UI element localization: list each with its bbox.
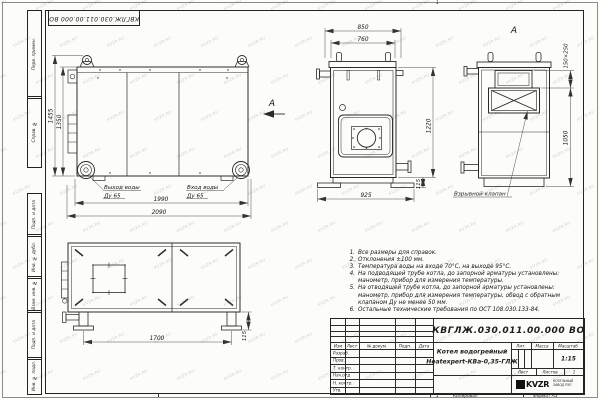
sheets-value: 1 (573, 369, 576, 374)
col-data: Дата (419, 343, 430, 348)
note-item: 4.На подводящей трубе котла, до запорной… (344, 271, 581, 285)
inlet-dn-label: Ду 65 (186, 194, 204, 200)
note-item: 5.На отводящей трубе котла, до запорной … (344, 285, 581, 306)
logo-mark (516, 380, 525, 389)
logo-text: KVZR (526, 380, 549, 389)
company-logo: KVZR (516, 380, 549, 389)
view-arrow-letter: А (268, 99, 275, 109)
note-item: 6.Остальные технические требования по ОС… (344, 307, 581, 314)
view-side (68, 56, 250, 181)
lit-label: Лит. (516, 343, 525, 348)
view-plan-dims (84, 312, 252, 345)
dim-front-height: 1220 (427, 118, 433, 133)
sheets-label: Листов (542, 369, 557, 374)
dim-valve-size: 150×250 (564, 43, 570, 69)
view-plan (62, 243, 242, 330)
row-utv: Утв. (333, 388, 342, 393)
row-razrab: Разраб. (333, 350, 349, 355)
view-section (461, 53, 551, 187)
view-front (317, 53, 415, 188)
title-block: Изм Лист № докум. Подп. Дата Разраб. Про… (330, 318, 585, 395)
col-izm: Изм (334, 343, 342, 348)
dim-length-outer: 2090 (152, 210, 167, 216)
dim-section-height: 1050 (564, 130, 570, 145)
col-list: Лист (347, 343, 357, 348)
col-podp: Подп. (399, 343, 411, 348)
inlet-label: Вход воды (187, 185, 219, 191)
view-direction-arrow (263, 110, 285, 118)
dim-width-inner: 760 (357, 37, 368, 43)
outlet-dn-label: Ду 65 (103, 194, 121, 200)
note-item: 1.Все размеры для справок. (344, 250, 581, 257)
section-view-letter: А (510, 26, 517, 36)
scale-value: 1:15 (561, 355, 576, 362)
explosion-valve-label: Взрывной клапан (454, 192, 506, 198)
dim-height-outer: 1455 (49, 108, 55, 123)
outlet-label: Выход воды (104, 185, 140, 191)
product-name-line1: Котел водогрейный (437, 349, 508, 356)
col-dokum: № докум. (367, 343, 387, 348)
title-designation: КВГЛЖ.030.011.00.000 ВО (432, 326, 584, 336)
note-item: 2.Отклонения ±100 мм. (344, 257, 581, 264)
dim-width-outer: 850 (357, 25, 368, 31)
technical-notes: 1.Все размеры для справок. 2.Отклонения … (344, 250, 581, 314)
product-name-line2: Heatexpert-КВа-0,35-ГЛЖ (426, 359, 518, 366)
row-tkontr: Т. контр. (333, 365, 352, 370)
scale-label: Масштаб (558, 343, 577, 348)
view-side-dims (52, 56, 251, 220)
dim-height-inner: 1350 (57, 114, 63, 129)
dim-foot-height: 115 (416, 178, 422, 189)
mass-label: Масса (535, 343, 548, 348)
dim-length-inner: 1990 (154, 197, 169, 203)
dim-base-width: 925 (360, 193, 371, 199)
row-nkontr: Н. контр. (333, 380, 353, 385)
drawing-sheet: КВГЛЖ.030.011.00.000 ВО Перв. примен. Сп… (0, 0, 600, 400)
dim-legs-span: 1700 (150, 336, 165, 342)
sheet-label: Лист (518, 369, 528, 374)
note-item: 3.Температура воды на входе 70°С, на вых… (344, 264, 581, 271)
row-prov: Пров. (333, 358, 345, 363)
row-nachotd: Нач.отд (333, 373, 350, 378)
company-name: КОТЕЛЬНЫЙ ЗАВОД РЭП (553, 380, 583, 387)
dim-plan-offset: 115 (242, 330, 248, 341)
